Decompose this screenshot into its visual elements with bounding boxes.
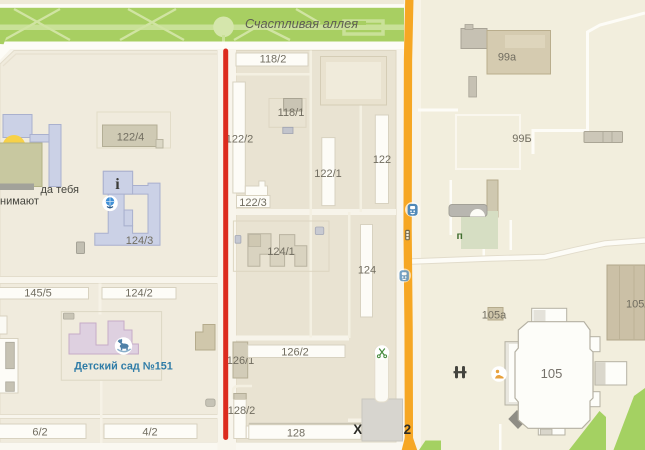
svg-text:99а: 99а (498, 52, 517, 64)
svg-text:4/2: 4/2 (142, 427, 157, 439)
svg-text:122: 122 (373, 154, 391, 166)
svg-text:128: 128 (287, 428, 305, 440)
svg-text:2: 2 (404, 422, 412, 437)
svg-text:нимают: нимают (0, 196, 39, 208)
svg-text:i: i (115, 176, 120, 193)
svg-text:124/3: 124/3 (126, 235, 154, 247)
svg-text:99Б: 99Б (512, 133, 531, 145)
svg-text:118/1: 118/1 (278, 107, 305, 119)
svg-text:п: п (457, 230, 463, 242)
svg-text:124/1: 124/1 (267, 246, 295, 258)
svg-text:Счастливая аллея: Счастливая аллея (245, 16, 358, 31)
svg-text:Детский сад №151: Детский сад №151 (74, 360, 173, 372)
svg-text:X: X (353, 422, 362, 437)
svg-text:126/2: 126/2 (281, 347, 309, 359)
svg-text:да тебя: да тебя (41, 184, 80, 196)
svg-text:145/5: 145/5 (24, 288, 52, 300)
svg-text:124/2: 124/2 (125, 288, 153, 300)
svg-text:122/3: 122/3 (239, 197, 267, 209)
svg-text:128/2: 128/2 (228, 405, 256, 417)
svg-text:105а: 105а (482, 310, 507, 322)
svg-text:122/4: 122/4 (117, 132, 145, 144)
svg-text:105/: 105/ (626, 299, 645, 311)
svg-text:122/1: 122/1 (314, 168, 342, 180)
svg-text:122/2: 122/2 (226, 134, 254, 146)
svg-text:124: 124 (358, 265, 376, 277)
svg-text:105: 105 (541, 366, 563, 381)
svg-text:118/2: 118/2 (260, 54, 287, 66)
svg-text:6/2: 6/2 (32, 427, 47, 439)
